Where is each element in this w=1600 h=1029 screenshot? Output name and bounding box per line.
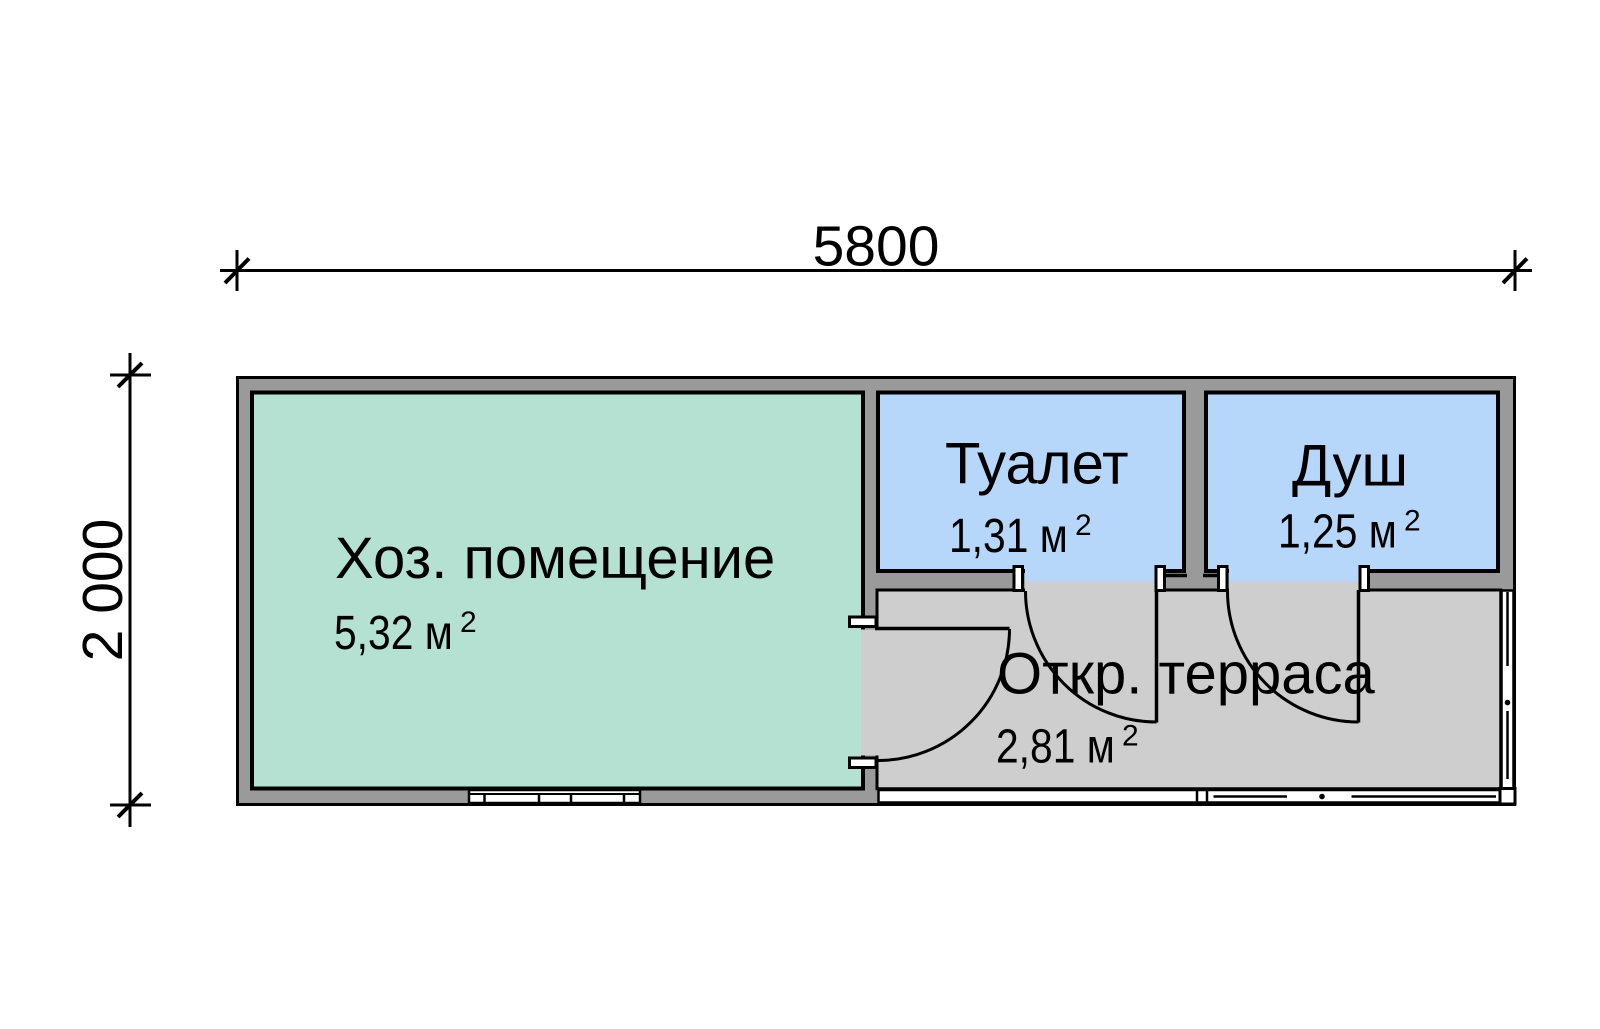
svg-text:2: 2 xyxy=(460,606,477,639)
svg-text:Откр. терраса: Откр. терраса xyxy=(997,642,1375,707)
svg-text:1,31 м: 1,31 м xyxy=(949,510,1068,563)
svg-text:1,25 м: 1,25 м xyxy=(1278,505,1397,558)
svg-text:5800: 5800 xyxy=(813,215,940,279)
svg-text:2: 2 xyxy=(1122,720,1139,753)
svg-text:2,81 м: 2,81 м xyxy=(996,720,1115,773)
svg-text:5,32 м: 5,32 м xyxy=(334,607,453,660)
svg-text:2 000: 2 000 xyxy=(71,519,135,662)
svg-text:Туалет: Туалет xyxy=(945,432,1129,497)
svg-text:2: 2 xyxy=(1404,505,1421,538)
svg-text:Душ: Душ xyxy=(1292,434,1408,499)
svg-text:Хоз. помещение: Хоз. помещение xyxy=(335,526,775,591)
svg-text:2: 2 xyxy=(1075,509,1092,542)
